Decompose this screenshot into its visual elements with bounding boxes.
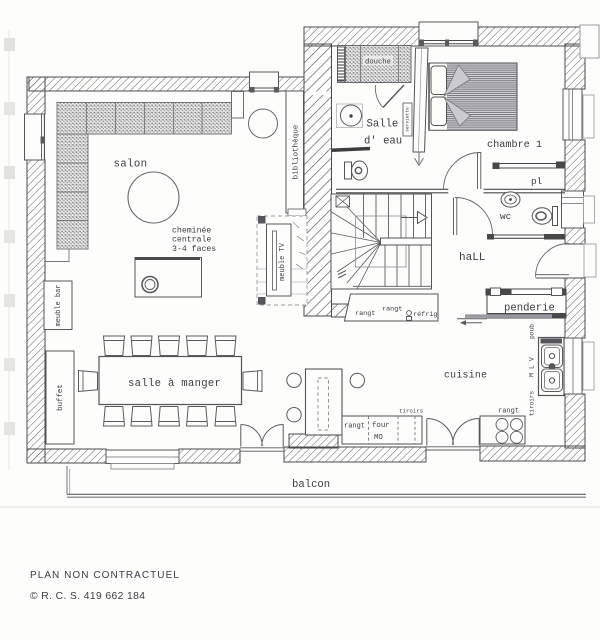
svg-text:four: four <box>372 422 390 430</box>
svg-text:douche: douche <box>365 59 391 67</box>
svg-text:poub: poub <box>529 324 536 339</box>
svg-text:salle à manger: salle à manger <box>128 378 221 390</box>
svg-text:buffet: buffet <box>57 384 65 411</box>
svg-text:réfrig: réfrig <box>413 311 437 319</box>
svg-text:meuble bar: meuble bar <box>55 284 63 326</box>
svg-text:tiroirs: tiroirs <box>399 408 423 415</box>
svg-text:3-4 faces: 3-4 faces <box>172 244 216 254</box>
svg-text:centrale: centrale <box>172 235 211 245</box>
svg-text:Salle: Salle <box>367 119 399 131</box>
svg-text:salon: salon <box>114 159 148 171</box>
svg-text:M L V: M L V <box>529 357 536 377</box>
svg-text:chambre 1: chambre 1 <box>487 139 542 151</box>
svg-text:bibliothèque: bibliothèque <box>293 124 301 179</box>
svg-text:tiroirs: tiroirs <box>529 391 536 417</box>
svg-text:wc: wc <box>500 211 511 222</box>
svg-text:MO: MO <box>374 434 383 442</box>
svg-text:balcon: balcon <box>292 479 330 491</box>
svg-text:pl: pl <box>531 176 543 187</box>
svg-text:rangt: rangt <box>382 306 402 314</box>
svg-text:rangt: rangt <box>344 423 365 431</box>
svg-text:serviette: serviette <box>405 107 411 132</box>
svg-text:meuble TV: meuble TV <box>279 242 287 281</box>
svg-text:penderie: penderie <box>504 303 555 315</box>
svg-text:rangt: rangt <box>355 310 375 318</box>
svg-text:rangt: rangt <box>498 408 519 416</box>
svg-text:cuisine: cuisine <box>444 370 487 381</box>
svg-text:haLL: haLL <box>459 252 485 264</box>
svg-text:cheminée: cheminée <box>172 226 211 236</box>
svg-text:d' eau: d' eau <box>364 136 402 148</box>
